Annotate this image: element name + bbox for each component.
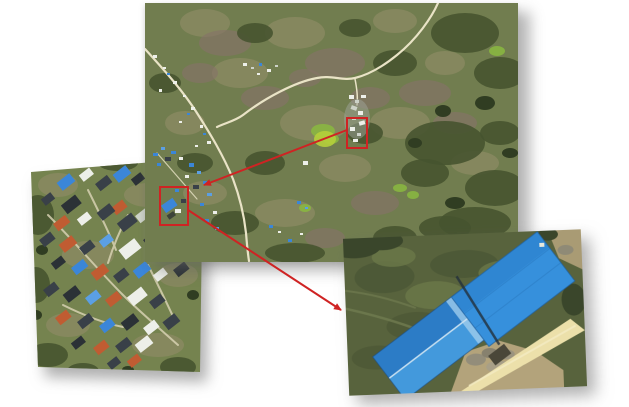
overview-panel: [145, 3, 518, 262]
white-speck: [539, 243, 544, 247]
figure-canvas: [0, 0, 629, 407]
overview-aerial-photo: [145, 3, 518, 262]
warehouse-inset-panel: [343, 229, 587, 395]
warehouse-closeup-photo: [343, 229, 587, 395]
